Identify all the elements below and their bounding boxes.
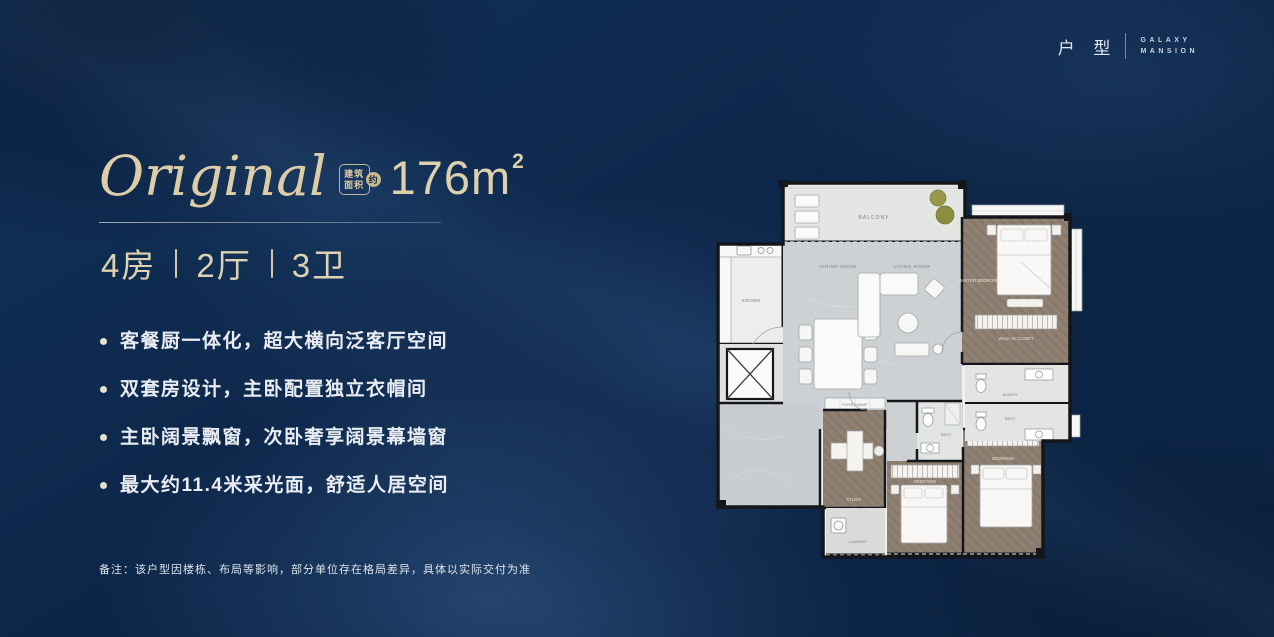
label-laundry: LAUNDRY [849,540,868,544]
label-bath: BATH [1005,417,1015,421]
bullet-dot-icon [100,386,107,393]
headline-divider [99,222,441,223]
bullet-dot-icon [100,338,107,345]
brand-lockup: 户 型 GALAXY MANSION [1058,33,1198,59]
bullet-dot-icon [100,434,107,441]
room-bedroom2 [887,461,963,555]
brand-en-line1: GALAXY [1140,37,1198,45]
area-badge-line2: 面积 [344,180,364,190]
room-master-bath [965,365,1080,441]
room-laundry [826,508,885,555]
area-value: 176 m 2 [390,154,524,201]
headline: Original 建筑 面积 约 176 m 2 [99,146,524,207]
area-badge-seal: 约 [366,172,381,187]
label-dining: DINING ROOM [819,264,856,269]
label-balcony: BALCONY [859,215,890,221]
spec-divider [271,249,273,278]
feature-item: 客餐厨一体化，超大横向泛客厅空间 [100,331,449,352]
elevator [718,344,783,403]
label-bath-mid: BATH [941,433,951,437]
feature-text: 客餐厨一体化，超大横向泛客厅空间 [120,331,448,352]
label-study: STUDY [847,497,862,502]
feature-item: 双套房设计，主卧配置独立衣帽间 [100,379,449,400]
floorplan-svg: BALCONY KITCHEN DINING ROOM LIVING ROOM … [695,177,1097,565]
spec-baths: 3卫 [292,239,347,287]
area-superscript: 2 [512,151,524,172]
label-foyer-cabinet: FOYER CABINET [842,403,868,407]
feature-text: 双套房设计，主卧配置独立衣帽间 [120,379,428,400]
label-living: LIVING ROOM [894,264,930,269]
label-bedroom3: BEDROOM [992,456,1014,461]
spec-rooms: 4房 [101,239,156,287]
brand-en-line2: MANSION [1140,48,1198,56]
label-master: MASTER BEDROOM [958,278,1001,283]
feature-item: 主卧阔景飘窗，次卧奢享阔景幕墙窗 [100,427,449,448]
disclaimer-note: 备注：该户型因楼栋、布局等影响，部分单位存在格局差异，具体以实际交付为准 [99,561,531,577]
spec-row: 4房 2厅 3卫 [101,239,347,287]
brand-divider [1125,33,1126,59]
plant-icon [930,190,946,206]
feature-text: 最大约11.4米采光面，舒适人居空间 [120,475,449,496]
spec-divider [175,249,177,278]
feature-text: 主卧阔景飘窗，次卧奢享阔景幕墙窗 [120,427,448,448]
feature-item: 最大约11.4米采光面，舒适人居空间 [100,475,449,496]
label-bedroom2: BEDROOM [914,479,936,484]
area-badge-line1: 建筑 [344,169,364,179]
label-closet: WALK-IN CLOSET [998,336,1034,341]
label-mbath: M.BATH [1003,393,1017,397]
room-bedroom3 [963,429,1043,555]
area-unit: m [471,154,511,201]
poster-canvas: 户 型 GALAXY MANSION Original 建筑 面积 约 176 … [0,0,1274,637]
headline-script-word: Original [99,146,327,207]
area-badge-box: 建筑 面积 [339,164,370,195]
area-number: 176 [390,154,471,201]
area-badge: 建筑 面积 约 [339,164,381,195]
feature-list: 客餐厨一体化，超大横向泛客厅空间 双套房设计，主卧配置独立衣帽间 主卧阔景飘窗，… [100,331,449,523]
plant-icon [936,206,954,224]
spec-halls: 2厅 [196,239,251,287]
label-kitchen: KITCHEN [742,298,760,303]
room-balcony [783,183,965,242]
bullet-dot-icon [100,482,107,489]
brand-cn-title: 户 型 [1058,34,1118,59]
brand-en-title: GALAXY MANSION [1140,37,1198,56]
